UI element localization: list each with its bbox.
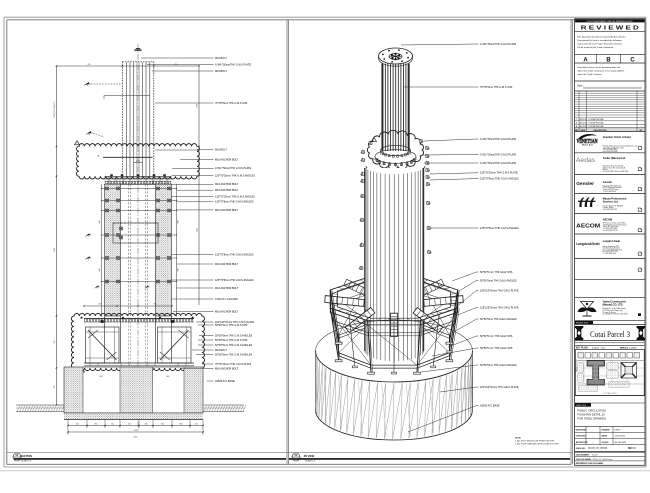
svg-text:Tel: (853) 2882 8888: Tel: (853) 2882 8888 bbox=[603, 149, 617, 151]
svg-text:Macau: Macau bbox=[603, 169, 608, 171]
svg-text:125*75*10mm THK G.M.S PLATE: 125*75*10mm THK G.M.S PLATE bbox=[480, 172, 518, 175]
svg-text:M16 BOLT: M16 BOLT bbox=[215, 57, 227, 60]
svg-text:FOR APPROVAL: FOR APPROVAL bbox=[589, 118, 605, 121]
svg-text:50*50*5mm THK GALV ANGLES: 50*50*5mm THK GALV ANGLES bbox=[480, 318, 517, 321]
svg-text:Gensler: Gensler bbox=[603, 181, 612, 184]
svg-text:3D VIEW: 3D VIEW bbox=[304, 454, 315, 458]
svg-text:M16 ANCHOR BOLT: M16 ANCHOR BOLT bbox=[215, 158, 239, 161]
svg-text:M16 ANCHOR BOLT: M16 ANCHOR BOLT bbox=[215, 287, 239, 290]
svg-text:A 500 R.C COLUMN: A 500 R.C COLUMN bbox=[215, 298, 238, 301]
svg-text:DWG NO:: DWG NO: bbox=[576, 448, 586, 450]
svg-text:Consultant review of this docu: Consultant review of this document does … bbox=[577, 66, 620, 69]
svg-text:SCALE 1:5: SCALE 1:5 bbox=[305, 460, 316, 463]
svg-text:864: 864 bbox=[100, 376, 103, 378]
svg-text:M16 ANCHOR BOLT: M16 ANCHOR BOLT bbox=[215, 209, 239, 212]
svg-text:A2500 R.C BASE: A2500 R.C BASE bbox=[215, 380, 235, 383]
svg-text:R E V I E W E D: R E V I E W E D bbox=[581, 26, 639, 32]
svg-text:A 346 *50mmTHK G.M.S PLATE: A 346 *50mmTHK G.M.S PLATE bbox=[480, 138, 517, 141]
svg-text:50*50*5mm THK G.M.S ANGLES: 50*50*5mm THK G.M.S ANGLES bbox=[215, 334, 253, 337]
svg-text:A 500 *50mmTHK G.M.S PLATE: A 500 *50mmTHK G.M.S PLATE bbox=[215, 167, 252, 170]
svg-text:300: 300 bbox=[111, 423, 114, 425]
svg-text:AECOM: AECOM bbox=[576, 223, 601, 229]
svg-text:DRWG. TITLE: DRWG. TITLE bbox=[576, 405, 586, 407]
svg-text:450: 450 bbox=[175, 64, 178, 66]
svg-text:50*50*5 mm THK GALV SHS: 50*50*5 mm THK GALV SHS bbox=[480, 271, 513, 274]
svg-text:50*50*5mm THK G.M.S ANGLES: 50*50*5mm THK G.M.S ANGLES bbox=[215, 353, 253, 356]
svg-text:DESIGNED: DESIGNED bbox=[576, 430, 587, 432]
svg-text:Cotai Parcel 3: Cotai Parcel 3 bbox=[590, 330, 630, 339]
svg-text:B: B bbox=[606, 57, 611, 63]
svg-text:600: 600 bbox=[177, 221, 179, 224]
svg-text:SECTION: SECTION bbox=[21, 454, 33, 458]
svg-text:600: 600 bbox=[99, 269, 101, 272]
svg-text:2. ALL FILLET WELDED SHOULD BE: 2. ALL FILLET WELDED SHOULD BE 6mm THK. bbox=[515, 443, 559, 446]
svg-text:AS SHOWN: AS SHOWN bbox=[615, 441, 627, 444]
svg-text:300: 300 bbox=[145, 423, 148, 425]
svg-text:T +81 3 6406 8400: T +81 3 6406 8400 bbox=[603, 191, 616, 193]
svg-text:M16 BOLT: M16 BOLT bbox=[215, 349, 227, 352]
svg-text:600: 600 bbox=[177, 269, 179, 272]
svg-text:300: 300 bbox=[128, 423, 131, 425]
svg-text:(Macau) CO. LTD.: (Macau) CO. LTD. bbox=[603, 304, 624, 307]
svg-text:Consultant(s)(s) and is accord: Consultant(s)(s) and is accorded the fol… bbox=[577, 39, 622, 42]
svg-text:Gensler: Gensler bbox=[576, 181, 594, 187]
svg-text:DATE: DATE bbox=[602, 435, 608, 438]
svg-text:status referred to in Project: status referred to in Project Procedure … bbox=[577, 43, 623, 46]
svg-text:REFERENCE CAD FILE NAME:: REFERENCE CAD FILE NAME: bbox=[576, 462, 604, 465]
svg-text:864: 864 bbox=[99, 304, 102, 306]
svg-text:76*76*5mm THK G.M.S SHS: 76*76*5mm THK G.M.S SHS bbox=[215, 102, 248, 105]
svg-text:Tel: (853) 2878 3215: Tel: (853) 2878 3215 bbox=[603, 209, 617, 211]
svg-text:50*50*5mm THK GALV ANGLES: 50*50*5mm THK GALV ANGLES bbox=[480, 364, 517, 367]
svg-text:DRAWN: DRAWN bbox=[602, 429, 610, 432]
svg-text:50*50*5 mm THK GALV SHS: 50*50*5 mm THK GALV SHS bbox=[480, 347, 513, 350]
svg-text:Fax: (853) 2882 8889: Fax: (853) 2882 8889 bbox=[603, 151, 618, 153]
svg-text:450: 450 bbox=[88, 64, 91, 66]
svg-text:Langdon&Seah: Langdon&Seah bbox=[576, 242, 599, 246]
svg-text:14/12/2015: 14/12/2015 bbox=[615, 436, 626, 438]
svg-text:CHECKED: CHECKED bbox=[576, 436, 587, 438]
svg-text:SCALE 1:5: SCALE 1:5 bbox=[21, 460, 32, 463]
svg-text:A2500 R.C BASE: A2500 R.C BASE bbox=[480, 404, 500, 407]
svg-text:M16 BOLT: M16 BOLT bbox=[215, 148, 227, 151]
svg-text:A 346 *50mmTHK G.M.S PLATE: A 346 *50mmTHK G.M.S PLATE bbox=[480, 162, 517, 165]
svg-text:100*100*10mm THK GALV PLATE: 100*100*10mm THK GALV PLATE bbox=[480, 289, 519, 292]
svg-text:1786 (TYP HEIGHT): 1786 (TYP HEIGHT) bbox=[54, 101, 56, 118]
svg-text:50*50*5mm THK G.M.S SHS: 50*50*5mm THK G.M.S SHS bbox=[215, 339, 248, 342]
svg-text:29/02/16: 29/02/16 bbox=[579, 123, 588, 125]
svg-text:Tel: (852) 3922 9000: Tel: (852) 3922 9000 bbox=[603, 228, 617, 230]
svg-text:FOUNTAIN DETAIL 25: FOUNTAIN DETAIL 25 bbox=[578, 413, 606, 417]
svg-text:864: 864 bbox=[95, 423, 98, 425]
svg-text:M16 ANCHOR BOLT: M16 ANCHOR BOLT bbox=[215, 189, 239, 192]
svg-text:Fax: (852) 3922 9797: Fax: (852) 3922 9797 bbox=[603, 230, 618, 232]
svg-text:50*50*5 mm THK GALV SHS: 50*50*5 mm THK GALV SHS bbox=[480, 335, 513, 338]
svg-text:1400: 1400 bbox=[196, 228, 198, 232]
svg-text:LWKD: LWKD bbox=[615, 430, 621, 432]
svg-text:125*75*8mm THK G.M.S ANGLES: 125*75*8mm THK G.M.S ANGLES bbox=[215, 279, 254, 282]
svg-text:This document has been reviewe: This document has been reviewed by the r… bbox=[577, 36, 626, 39]
svg-text:Langdon Seah: Langdon Seah bbox=[603, 240, 621, 243]
svg-text:300: 300 bbox=[195, 423, 198, 425]
svg-text:M16 ANCHOR BOLT: M16 ANCHOR BOLT bbox=[215, 183, 239, 186]
svg-text:Tel: (853) 2833 1265 Fax: 283: Tel: (853) 2833 1265 Fax: 2833 1266 bbox=[603, 171, 629, 173]
svg-text:A: A bbox=[583, 57, 588, 63]
svg-text:MACAO: MACAO bbox=[582, 143, 593, 146]
svg-text:315U5_PC_B5050: 315U5_PC_B5050 bbox=[588, 448, 608, 450]
svg-text:Venetian Orient Limited: Venetian Orient Limited bbox=[603, 136, 631, 139]
svg-text:75*75*10mm THK G.M.S PLATE: 75*75*10mm THK G.M.S PLATE bbox=[215, 363, 252, 366]
svg-text:FOR APPROVAL: FOR APPROVAL bbox=[589, 122, 605, 125]
svg-text:1400: 1400 bbox=[54, 248, 56, 252]
svg-text:600: 600 bbox=[99, 221, 101, 224]
svg-text:AECOM: AECOM bbox=[603, 219, 612, 222]
svg-text:125*75*8mm THK G.M.S ANGLES: 125*75*8mm THK G.M.S ANGLES bbox=[480, 227, 519, 230]
svg-text:NOTE:: NOTE: bbox=[515, 438, 522, 440]
svg-text:A 346 *50mmTHK G.M.S PLATE: A 346 *50mmTHK G.M.S PLATE bbox=[215, 63, 252, 66]
svg-text:C: C bbox=[630, 57, 635, 63]
svg-text:relieve the Trade Contractor o: relieve the Trade Contractor of its resp… bbox=[577, 69, 625, 72]
svg-text:50*50*5mm THK GALV ANGLES: 50*50*5mm THK GALV ANGLES bbox=[480, 279, 517, 282]
svg-text:125*75*8mm THK G.M.S ANGLES: 125*75*8mm THK G.M.S ANGLES bbox=[215, 253, 254, 256]
svg-text:M16 ANCHOR BOLT: M16 ANCHOR BOLT bbox=[215, 367, 239, 370]
svg-text:300: 300 bbox=[161, 423, 164, 425]
svg-text:100*100*10mm THK GALV PLATE: 100*100*10mm THK GALV PLATE bbox=[480, 386, 519, 389]
svg-text:Macau Tel: (853) 2833 1710: Macau Tel: (853) 2833 1710 bbox=[603, 249, 622, 251]
svg-text:520: 520 bbox=[54, 341, 56, 344]
svg-text:125*75*8mm THK G.M.S ANGLES: 125*75*8mm THK G.M.S ANGLES bbox=[480, 178, 519, 181]
svg-text:300: 300 bbox=[76, 423, 79, 425]
svg-text:50*50*5mm THK G.M.S ANGLES: 50*50*5mm THK G.M.S ANGLES bbox=[215, 344, 253, 347]
svg-text:1786: 1786 bbox=[196, 104, 198, 108]
svg-text:SCALE: SCALE bbox=[602, 441, 610, 444]
svg-text:Fax: (853) 2833 1532: Fax: (853) 2833 1532 bbox=[603, 251, 618, 253]
svg-text:29/02/16: 29/02/16 bbox=[579, 119, 588, 121]
svg-text:370: 370 bbox=[54, 386, 56, 389]
svg-text:FOR STEEL DRAWING: FOR STEEL DRAWING bbox=[578, 417, 606, 421]
svg-text:125*125*10mm THK GALV PLATE: 125*125*10mm THK GALV PLATE bbox=[480, 306, 519, 309]
svg-text:p.M 4: p.M 4 bbox=[136, 160, 140, 162]
svg-text:under the Trade Contract.: under the Trade Contract. bbox=[577, 73, 602, 76]
svg-text:125*75*8mm THK G.M.S ANGLES: 125*75*8mm THK G.M.S ANGLES bbox=[215, 201, 254, 204]
svg-text:PUBLIC CIRCULATION: PUBLIC CIRCULATION bbox=[578, 409, 607, 413]
svg-text:125*75*10mm THK G.M.S ANGLES: 125*75*10mm THK G.M.S ANGLES bbox=[215, 195, 255, 198]
svg-text:Tel: (853)2875 3199 Fax: 2875: Tel: (853)2875 3199 Fax: 2875 3180 bbox=[603, 314, 628, 316]
svg-text:864: 864 bbox=[154, 304, 157, 306]
svg-text:5.4 for action by the Trade Co: 5.4 for action by the Trade Contractor. bbox=[577, 46, 614, 49]
svg-text:M16 ANCHOR BOLT: M16 ANCHOR BOLT bbox=[215, 311, 239, 314]
svg-text:Services Ltd.: Services Ltd. bbox=[603, 201, 619, 204]
svg-text:T + 853 2833 3000: T + 853 2833 3000 bbox=[603, 253, 616, 255]
svg-text:Tokyo 106-0032 Japan: Tokyo 106-0032 Japan bbox=[603, 189, 619, 191]
svg-text:50: 50 bbox=[98, 155, 100, 157]
svg-text:M16 BOLT: M16 BOLT bbox=[215, 70, 227, 73]
svg-text:A 500 *50mmTHK G.M.S PLATE: A 500 *50mmTHK G.M.S PLATE bbox=[480, 153, 517, 156]
svg-text:Aedas: Aedas bbox=[576, 157, 596, 164]
svg-text:1. ALL BOLT SHOULD BE FIXING O: 1. ALL BOLT SHOULD BE FIXING ON SITE. bbox=[515, 440, 555, 443]
svg-text:50*50*5mm THK G.M.S SHS: 50*50*5mm THK G.M.S SHS bbox=[215, 324, 248, 327]
svg-text:A 346 *50mmTHK G.M.S PLATE: A 346 *50mmTHK G.M.S PLATE bbox=[480, 43, 517, 46]
svg-text:REV: C: REV: C bbox=[628, 448, 636, 450]
svg-text:CAD FILE NAME:: CAD FILE NAME: bbox=[576, 458, 592, 461]
svg-text:125*75*10mm THK G.M.S ANGLES: 125*75*10mm THK G.M.S ANGLES bbox=[215, 175, 255, 178]
svg-text:1: 1 bbox=[77, 143, 78, 145]
svg-text:2564: 2564 bbox=[134, 430, 138, 432]
svg-text:864: 864 bbox=[180, 423, 183, 425]
svg-text:76*76*5mm THK G.M.S SHS: 76*76*5mm THK G.M.S SHS bbox=[480, 86, 513, 89]
svg-text:2564: 2564 bbox=[134, 436, 138, 438]
svg-text:315U5_PC_B5050.dwg: 315U5_PC_B5050.dwg bbox=[593, 459, 613, 461]
svg-text:864: 864 bbox=[167, 376, 170, 378]
svg-text:M16 ANCHOR BOLT: M16 ANCHOR BOLT bbox=[215, 263, 239, 266]
svg-text:Aedas (Macau) Ltd.: Aedas (Macau) Ltd. bbox=[603, 157, 626, 160]
